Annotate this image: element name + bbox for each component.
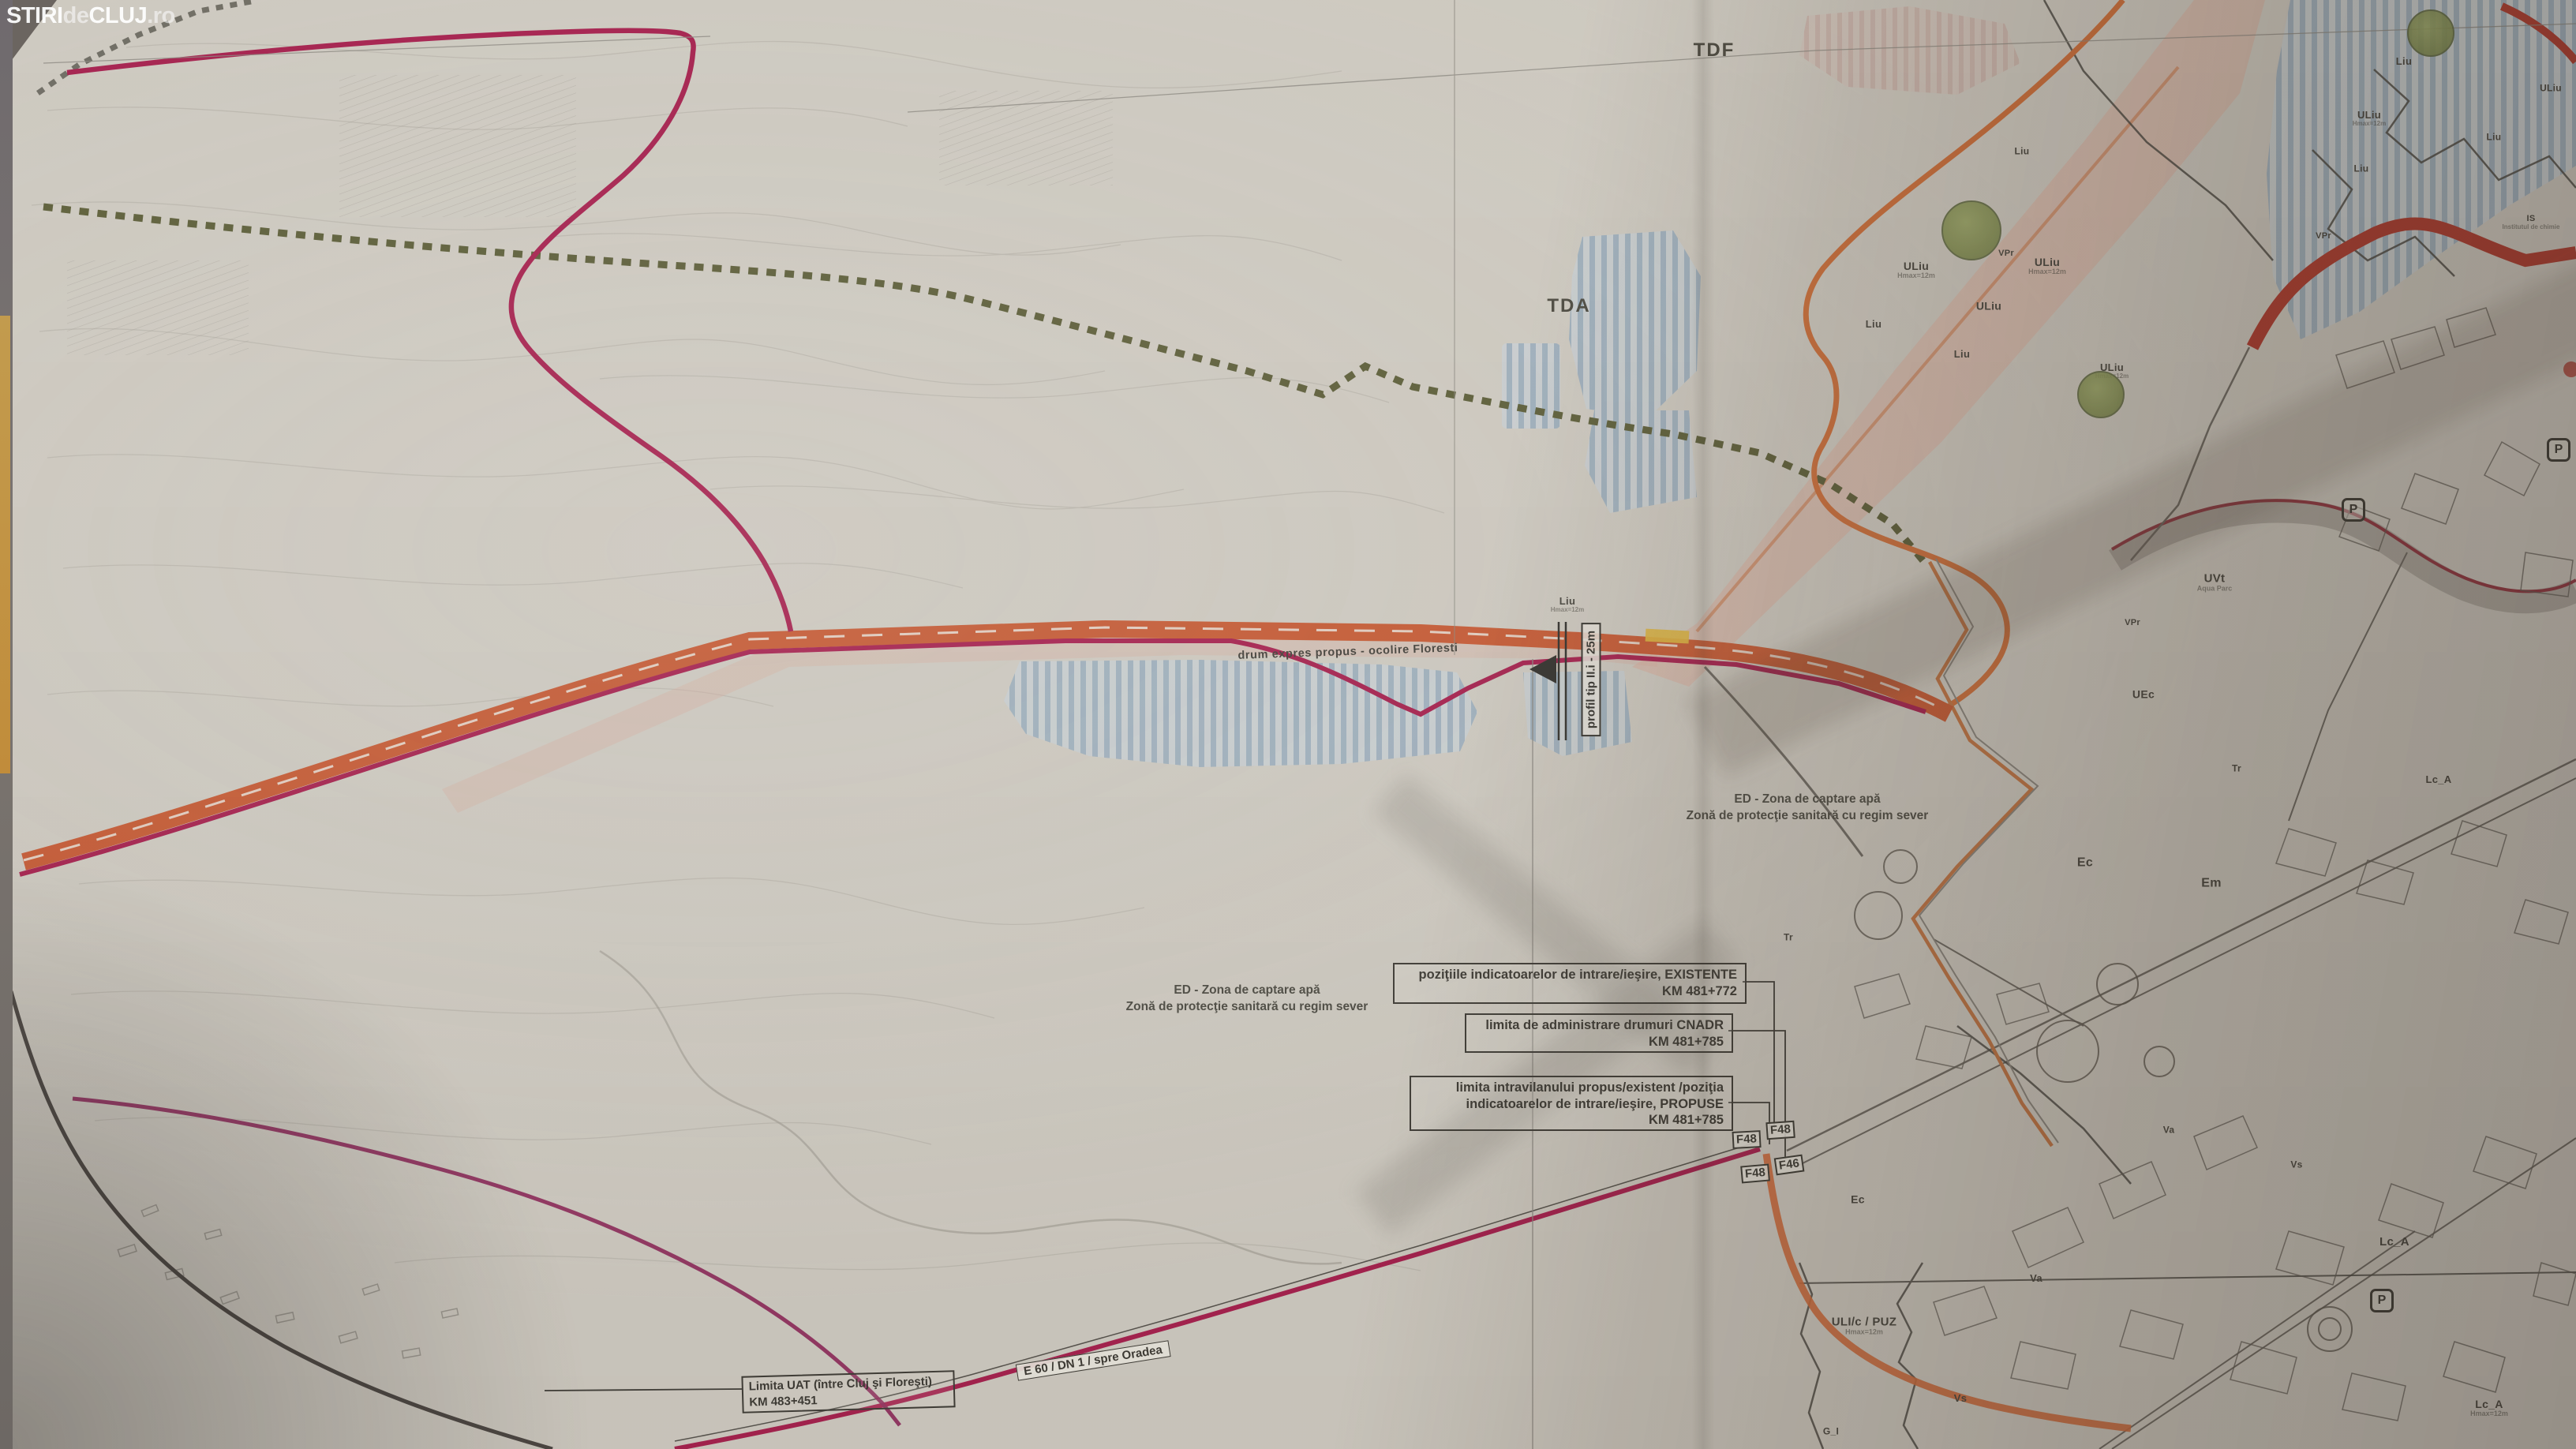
zone-label: Tr (1784, 933, 1793, 943)
ed-zone-line1: ED - Zona de captare apă (1126, 983, 1368, 999)
zone-label: Liu (1954, 349, 1970, 360)
zone-label-text: ULiu (1897, 260, 1935, 272)
callout-text: limita de administrare drumuri CNADR (1485, 1018, 1724, 1032)
zone-label-text: Lc_A (2379, 1236, 2409, 1249)
zone-label-text: ULiu (2028, 256, 2066, 268)
roundabout-symbol (1883, 849, 1918, 884)
callout-existing-signs: poziţiile indicatoarelor de intrare/ieşi… (1393, 963, 1747, 1004)
zone-label-text: UVt (2197, 572, 2233, 585)
zone-label: Lc_AHmax=12m (2470, 1398, 2508, 1417)
zone-label-text: Vs (2290, 1160, 2302, 1170)
parking-icon: P (2342, 498, 2365, 522)
parking-icon: P (2370, 1289, 2394, 1312)
zone-label-sub: Aqua Parc (2197, 585, 2233, 592)
zone-label: ULiu (2540, 84, 2562, 94)
zone-label-text: Liu (2015, 147, 2030, 157)
zone-label: ULiuHmax=12m (2028, 256, 2066, 275)
zone-label: ISInstitutul de chimie (2503, 215, 2560, 230)
zone-label-text: Liu (2396, 56, 2412, 67)
roundabout-symbol (2318, 1317, 2342, 1341)
ed-zone-line2: Zonă de protecţie sanitară cu regim seve… (1687, 808, 1929, 825)
callout-cnadr-limit: limita de administrare drumuri CNADR KM … (1465, 1013, 1733, 1053)
zone-label-sub: Hmax=12m (1832, 1328, 1896, 1335)
zone-label-text: Ec (2077, 857, 2093, 871)
zone-label: Vs (1954, 1393, 1968, 1404)
watermark: STIRIdeCLUJ.ro (6, 3, 175, 29)
zone-label: Liu (2354, 164, 2369, 174)
zone-label: ULiu (1976, 301, 2001, 313)
zone-label: Liu (2487, 133, 2502, 143)
tree-symbol (2407, 9, 2454, 57)
zone-label-sub: Hmax=12m (1897, 272, 1935, 279)
callout-km: KM 481+785 (1649, 1035, 1724, 1049)
zone-label-text: Vs (1954, 1393, 1968, 1404)
zone-label: Liu (2396, 56, 2412, 67)
junction-marker: F46 (1774, 1155, 1805, 1176)
zone-label-text: Lc_A (2426, 774, 2452, 785)
zone-label-text: Va (2163, 1125, 2175, 1136)
ed-zone-line2: Zonă de protecţie sanitară cu regim seve… (1126, 999, 1368, 1016)
uat-limit-box: Limita UAT (între Cluj şi Floreşti) KM 4… (741, 1370, 955, 1413)
roundabout-symbol (2144, 1046, 2175, 1077)
watermark-ro: .ro (147, 3, 175, 28)
zone-label: VPr (2125, 619, 2140, 628)
zone-label: Liu (1866, 319, 1881, 330)
zone-label: Ec (2077, 857, 2093, 871)
zone-label-text: UEc (2132, 689, 2155, 701)
zone-label: UEc (2132, 689, 2155, 701)
zone-label-text: IS (2503, 215, 2560, 224)
zone-label: Va (2163, 1125, 2175, 1136)
zone-label: ULI/c / PUZHmax=12m (1832, 1316, 1896, 1335)
callout-km: KM 481+785 (1649, 1113, 1724, 1127)
zone-label-text: VPr (2125, 619, 2140, 628)
zone-label-sub: Hmax=12m (2028, 268, 2066, 275)
zone-label: G_I (1823, 1427, 1839, 1437)
zone-label: ULiuHmax=12m (1897, 260, 1935, 279)
zone-label: VPr (1998, 249, 2014, 259)
watermark-stiri: STIRI (6, 3, 63, 28)
zone-label-text: Lc_A (2470, 1398, 2508, 1410)
zone-label: VPr (2316, 232, 2331, 241)
watermark-de: de (63, 3, 89, 28)
zone-label: Liu (2015, 147, 2030, 157)
zone-label: Lc_A (2379, 1236, 2409, 1249)
ed-zone-note-left: ED - Zona de captare apă Zonă de protecţ… (1126, 983, 1368, 1016)
zone-label-text: Liu (1866, 319, 1881, 330)
zone-label-text: ULiu (2353, 110, 2386, 121)
zone-label-text: Va (2030, 1273, 2042, 1284)
zone-label: Tr (2232, 764, 2241, 774)
label-layer: TDF TDA drum expres propus - ocolire Flo… (0, 0, 2576, 1449)
zone-label-text: Ec (1851, 1194, 1865, 1206)
zone-label-sub: Hmax=12m (2353, 121, 2386, 127)
zone-label-text: VPr (1998, 249, 2014, 259)
proposed-road-label: drum expres propus - ocolire Floresti (1237, 642, 1458, 662)
zone-label-tdf: TDF (1694, 39, 1735, 62)
callout-proposed-signs: limita intravilanului propus/existent /p… (1410, 1076, 1733, 1131)
zone-label-text: ULiu (1976, 301, 2001, 313)
zone-label-text: ULiu (2540, 84, 2562, 94)
zone-label-sub: Institutul de chimie (2503, 224, 2560, 230)
zone-label: UVtAqua Parc (2197, 572, 2233, 592)
zone-label-text: Tr (1784, 933, 1793, 943)
junction-marker: F48 (1732, 1130, 1762, 1149)
watermark-cluj: CLUJ (88, 3, 147, 28)
zone-label-sub: Hmax=12m (1551, 607, 1584, 613)
zone-label-text: Tr (2232, 764, 2241, 774)
zone-label-text: Liu (2487, 133, 2502, 143)
e60-road-label: E 60 / DN 1 / spre Oradea (1016, 1340, 1170, 1380)
zone-label: Vs (2290, 1160, 2302, 1170)
zone-label-text: Liu (1954, 349, 1970, 360)
zone-label-text: Liu (1551, 596, 1584, 607)
zone-label-text: Em (2201, 878, 2222, 891)
zone-label-text: G_I (1823, 1427, 1839, 1437)
junction-marker: F48 (1765, 1121, 1795, 1140)
ed-zone-note-right: ED - Zona de captare apă Zonă de protecţ… (1687, 792, 1929, 825)
zone-label-text: VPr (2316, 232, 2331, 241)
callout-text: limita intravilanului propus/existent /p… (1456, 1080, 1724, 1111)
roundabout-symbol (1854, 891, 1903, 940)
zone-label-text: ULI/c / PUZ (1832, 1316, 1896, 1328)
callout-km: KM 481+772 (1662, 984, 1737, 998)
zone-label: Ec (1851, 1194, 1865, 1206)
zone-label: LiuHmax=12m (1551, 596, 1584, 613)
zone-label: ULiuHmax=12m (2353, 110, 2386, 127)
roundabout-symbol (2096, 963, 2139, 1005)
zone-label: Em (2201, 878, 2222, 891)
zone-label-sub: Hmax=12m (2470, 1410, 2508, 1417)
junction-marker: F48 (1740, 1163, 1770, 1183)
parking-icon: P (2547, 438, 2570, 462)
zone-label: Va (2030, 1273, 2042, 1284)
profile-type-marker: profil tip II.i - 25m (1582, 623, 1601, 736)
zone-label: Lc_A (2426, 774, 2452, 785)
callout-text: poziţiile indicatoarelor de intrare/ieşi… (1419, 968, 1737, 982)
map-photo: TDF TDA drum expres propus - ocolire Flo… (0, 0, 2576, 1449)
zone-label-tda: TDA (1547, 295, 1590, 317)
tree-symbol (2077, 371, 2125, 418)
tree-symbol (1941, 200, 2001, 260)
ed-zone-line1: ED - Zona de captare apă (1687, 792, 1929, 808)
zone-label-text: Liu (2354, 164, 2369, 174)
roundabout-symbol (2036, 1020, 2099, 1083)
